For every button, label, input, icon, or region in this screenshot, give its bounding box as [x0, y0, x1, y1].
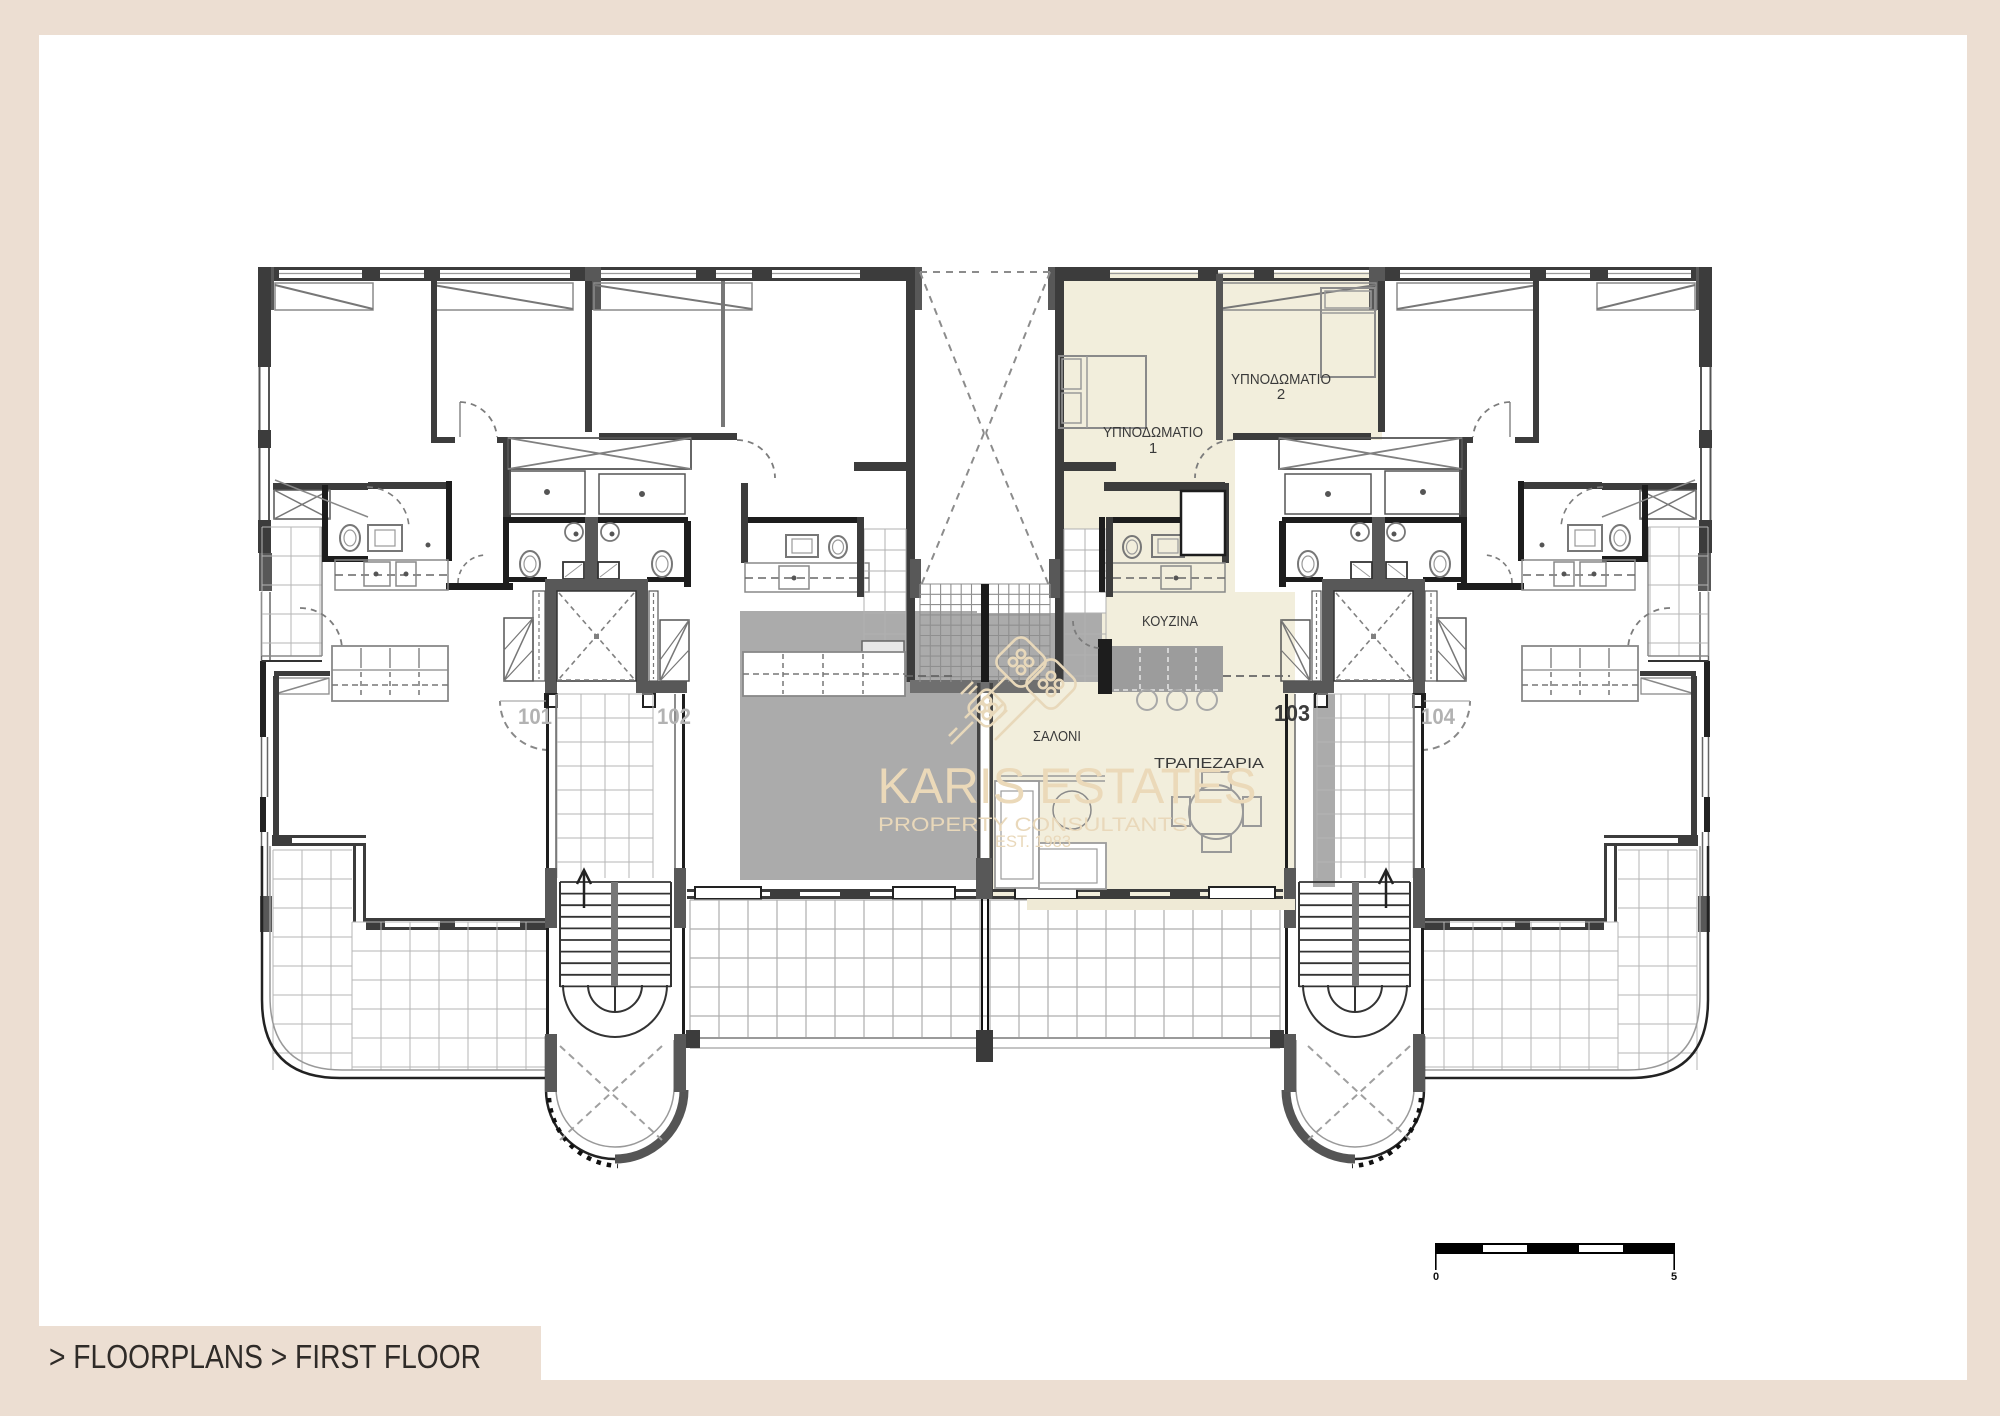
svg-text:EST. 1983: EST. 1983	[995, 832, 1071, 851]
svg-text:ΚΟΥΖΙΝΑ: ΚΟΥΖΙΝΑ	[1142, 613, 1198, 630]
svg-text:ΣΑΛΟΝΙ: ΣΑΛΟΝΙ	[1033, 728, 1081, 745]
svg-text:1: 1	[1149, 440, 1157, 457]
svg-text:0: 0	[1433, 1271, 1439, 1283]
svg-text:101: 101	[518, 704, 552, 729]
svg-text:102: 102	[657, 704, 691, 729]
svg-text:ΥΠΝΟΔΩΜΑΤΙΟ: ΥΠΝΟΔΩΜΑΤΙΟ	[1103, 424, 1203, 441]
svg-text:2: 2	[1277, 386, 1285, 403]
svg-text:103: 103	[1274, 700, 1310, 726]
svg-text:104: 104	[1421, 704, 1456, 729]
svg-text:5: 5	[1671, 1271, 1677, 1283]
svg-text:KARIS ESTATES: KARIS ESTATES	[878, 758, 1257, 814]
svg-text:> FLOORPLANS > FIRST FLOOR: > FLOORPLANS > FIRST FLOOR	[49, 1338, 481, 1375]
